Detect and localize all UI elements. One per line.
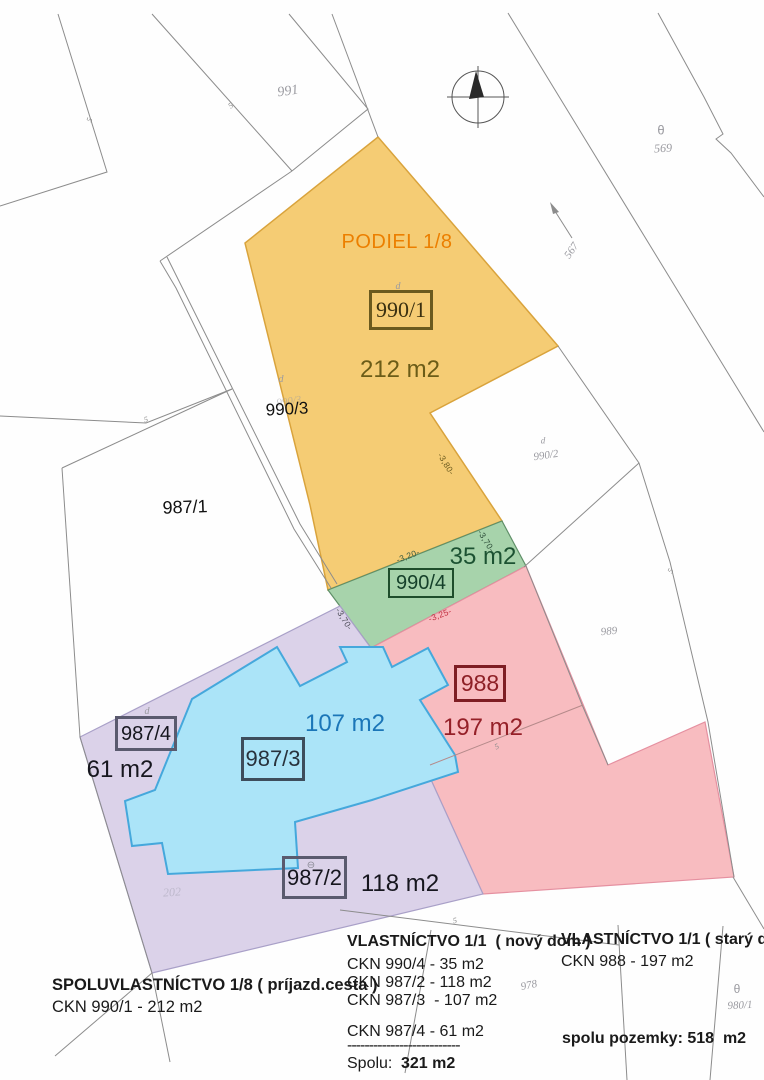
compass-icon — [447, 66, 509, 128]
theta-symbol-980-1: θ — [734, 983, 741, 995]
parcel-label-569: 569 — [654, 142, 673, 155]
boundary-line — [332, 14, 378, 137]
podiel-share-label: PODIEL 1/8 — [342, 232, 453, 252]
ghost-map-text: 202 — [163, 885, 182, 898]
legend-middle-line-987-3: CKN 987/3 - 107 m2 — [347, 993, 497, 1009]
parcel-label-987-1: 987/1 — [162, 497, 208, 517]
legend-left-line-990-1: CKN 990/1 - 212 m2 — [52, 999, 202, 1016]
parcel-label-989: 989 — [600, 626, 617, 638]
map-canvas — [0, 0, 764, 1080]
parcel-label-980-1: 980/1 — [727, 1000, 753, 1012]
theta-symbol-569: θ — [657, 124, 664, 137]
legend-middle-total-label: Spolu: — [347, 1056, 392, 1072]
parcel-box-987-3: 987/3 — [241, 737, 305, 781]
boundary-line — [289, 14, 368, 171]
legend-right-total: spolu pozemky: 518 m2 — [562, 1031, 746, 1047]
boundary-line — [618, 925, 627, 1080]
boundary-line — [62, 468, 80, 737]
boundary-line — [152, 14, 292, 171]
survey-mark-d-990-2: d — [541, 437, 546, 446]
area-987-3: 107 m2 — [305, 712, 385, 736]
survey-mark-d-990-1: d — [396, 282, 401, 292]
parcel-box-988: 988 — [454, 665, 506, 702]
parcel-box-990-4: 990/4 — [388, 568, 454, 598]
area-988: 197 m2 — [443, 716, 523, 740]
boundary-line — [658, 13, 764, 197]
boundary-line — [733, 877, 764, 929]
legend-middle-line-990-4: CKN 990/4 - 35 m2 — [347, 957, 484, 973]
boundary-line — [0, 14, 107, 206]
legend-middle-title: VLASTNÍCTVO 1/1 ( nový dom ) — [347, 934, 591, 950]
area-990-4: 35 m2 — [450, 545, 517, 569]
boundary-line — [62, 389, 232, 468]
legend-left-title: SPOLUVLASTNÍCTVO 1/8 ( príjazd.cesta ) — [52, 977, 377, 994]
boundary-line — [0, 389, 232, 423]
cadastral-map: PODIEL 1/8 990/1 d 212 m2 35 m2 990/4 98… — [0, 0, 764, 1080]
street-line — [508, 13, 764, 432]
area-987-4: 61 m2 — [87, 758, 154, 782]
legend-right-line-988: CKN 988 - 197 m2 — [561, 954, 694, 970]
legend-middle-line-987-2: CKN 987/2 - 118 m2 — [347, 975, 492, 991]
boundary-line — [524, 463, 639, 567]
survey-mark-d-990-3: d — [279, 375, 284, 385]
legend-right-title: VLASTNÍCTVO 1/1 ( starý dom ) — [561, 932, 764, 948]
area-987-2: 118 m2 — [361, 872, 439, 896]
survey-mark-d-987-4: d — [145, 707, 150, 717]
north-needle-icon — [469, 71, 484, 99]
boundary-line — [710, 926, 723, 1080]
parcel-box-990-1: 990/1 — [369, 290, 433, 330]
parcel-label-991: 991 — [277, 84, 300, 101]
area-990-1: 212 m2 — [360, 358, 440, 382]
parcel-label-990-3: 990/3 — [265, 399, 308, 418]
survey-mark-circle-987-2: ⊖ — [307, 861, 315, 871]
street-arrow-icon — [550, 202, 572, 238]
parcel-box-987-4: 987/4 — [115, 716, 177, 751]
legend-middle-total-value: 321 m2 — [401, 1056, 455, 1072]
legend-middle-divider: -------------------------- — [347, 1038, 460, 1054]
